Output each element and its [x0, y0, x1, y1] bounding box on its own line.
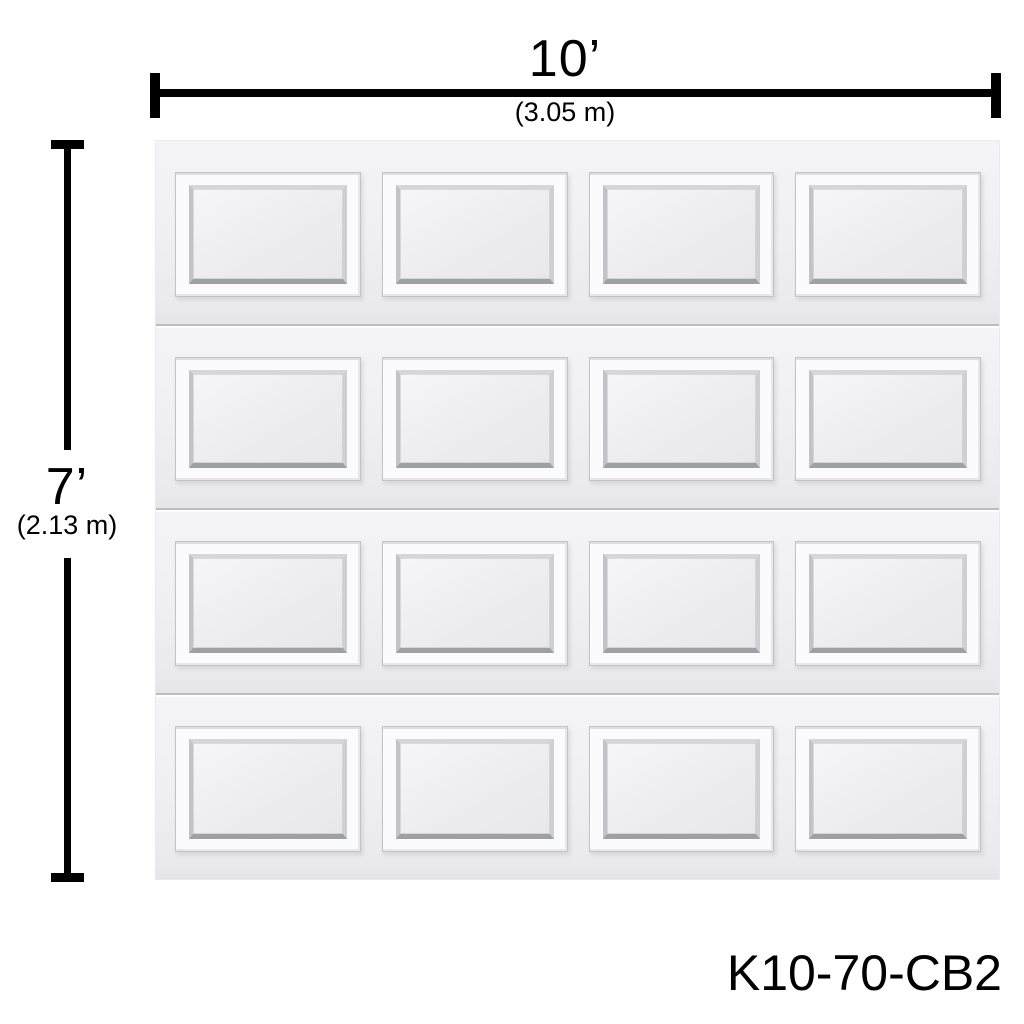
- panel-bevel: [603, 554, 761, 653]
- raised-panel: [589, 726, 775, 853]
- panel-bevel: [809, 554, 967, 653]
- raised-panel: [175, 726, 361, 853]
- width-dimension-label: 10’: [425, 33, 705, 85]
- raised-panel: [175, 357, 361, 482]
- panel-bevel: [603, 185, 761, 284]
- panel-bevel: [603, 739, 761, 840]
- panel-bevel: [396, 370, 554, 469]
- door-section: [156, 510, 999, 695]
- garage-door: [155, 140, 1000, 880]
- panel-bevel: [189, 554, 347, 653]
- panel-bevel: [809, 185, 967, 284]
- raised-panel: [589, 541, 775, 666]
- panel-bevel: [809, 370, 967, 469]
- door-section: [156, 326, 999, 511]
- raised-panel: [795, 172, 981, 297]
- raised-panel: [795, 726, 981, 853]
- door-section: [156, 695, 999, 880]
- height-dimension-line-lower: [64, 558, 71, 875]
- panel-bevel: [396, 185, 554, 284]
- raised-panel: [589, 357, 775, 482]
- panel-bevel: [396, 739, 554, 840]
- raised-panel: [382, 172, 568, 297]
- raised-panel: [795, 357, 981, 482]
- raised-panel: [589, 172, 775, 297]
- panel-bevel: [189, 185, 347, 284]
- door-section: [156, 141, 999, 326]
- raised-panel: [175, 541, 361, 666]
- height-dimension-line-upper: [64, 146, 71, 450]
- raised-panel: [382, 541, 568, 666]
- raised-panel: [795, 541, 981, 666]
- raised-panel: [382, 357, 568, 482]
- raised-panel: [175, 172, 361, 297]
- height-dimension-metric-label: (2.13 m): [0, 512, 134, 539]
- panel-bevel: [396, 554, 554, 653]
- width-dimension-right-cap: [991, 73, 1001, 118]
- width-dimension-line: [150, 89, 1001, 97]
- width-dimension-metric-label: (3.05 m): [425, 99, 705, 126]
- panel-bevel: [603, 370, 761, 469]
- height-dimension-bottom-cap: [51, 873, 84, 882]
- width-dimension-left-cap: [150, 73, 160, 118]
- diagram-canvas: 10’ (3.05 m) 7’ (2.13 m) K10-70-CB2: [0, 0, 1024, 1024]
- panel-bevel: [189, 739, 347, 840]
- raised-panel: [382, 726, 568, 853]
- model-number: K10-70-CB2: [600, 948, 1002, 998]
- panel-bevel: [189, 370, 347, 469]
- height-dimension-label: 7’: [10, 461, 124, 513]
- panel-bevel: [809, 739, 967, 840]
